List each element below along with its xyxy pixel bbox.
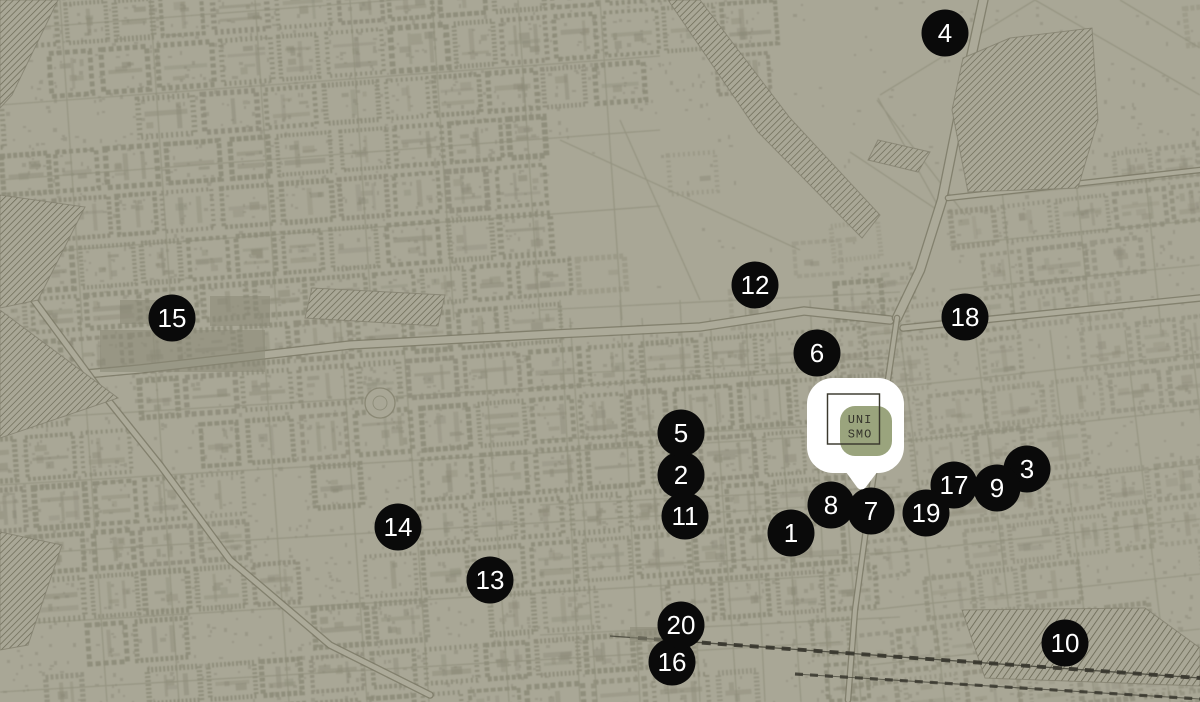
svg-text:14: 14 xyxy=(384,512,413,542)
svg-text:12: 12 xyxy=(741,270,770,300)
svg-text:6: 6 xyxy=(810,338,824,368)
svg-text:SMO: SMO xyxy=(848,428,873,442)
svg-text:3: 3 xyxy=(1020,454,1034,484)
svg-text:18: 18 xyxy=(951,302,980,332)
svg-text:2: 2 xyxy=(674,460,688,490)
svg-text:16: 16 xyxy=(658,647,687,677)
svg-text:1: 1 xyxy=(784,518,798,548)
svg-text:7: 7 xyxy=(864,496,878,526)
svg-text:11: 11 xyxy=(672,501,699,531)
svg-text:10: 10 xyxy=(1051,628,1080,658)
svg-text:9: 9 xyxy=(990,473,1004,503)
svg-text:19: 19 xyxy=(912,498,941,528)
svg-text:15: 15 xyxy=(158,303,187,333)
svg-text:5: 5 xyxy=(674,418,688,448)
svg-text:8: 8 xyxy=(824,490,838,520)
svg-text:20: 20 xyxy=(667,610,696,640)
svg-text:13: 13 xyxy=(476,565,505,595)
svg-text:UNI: UNI xyxy=(848,413,873,427)
svg-text:4: 4 xyxy=(938,18,952,48)
svg-text:17: 17 xyxy=(940,470,969,500)
